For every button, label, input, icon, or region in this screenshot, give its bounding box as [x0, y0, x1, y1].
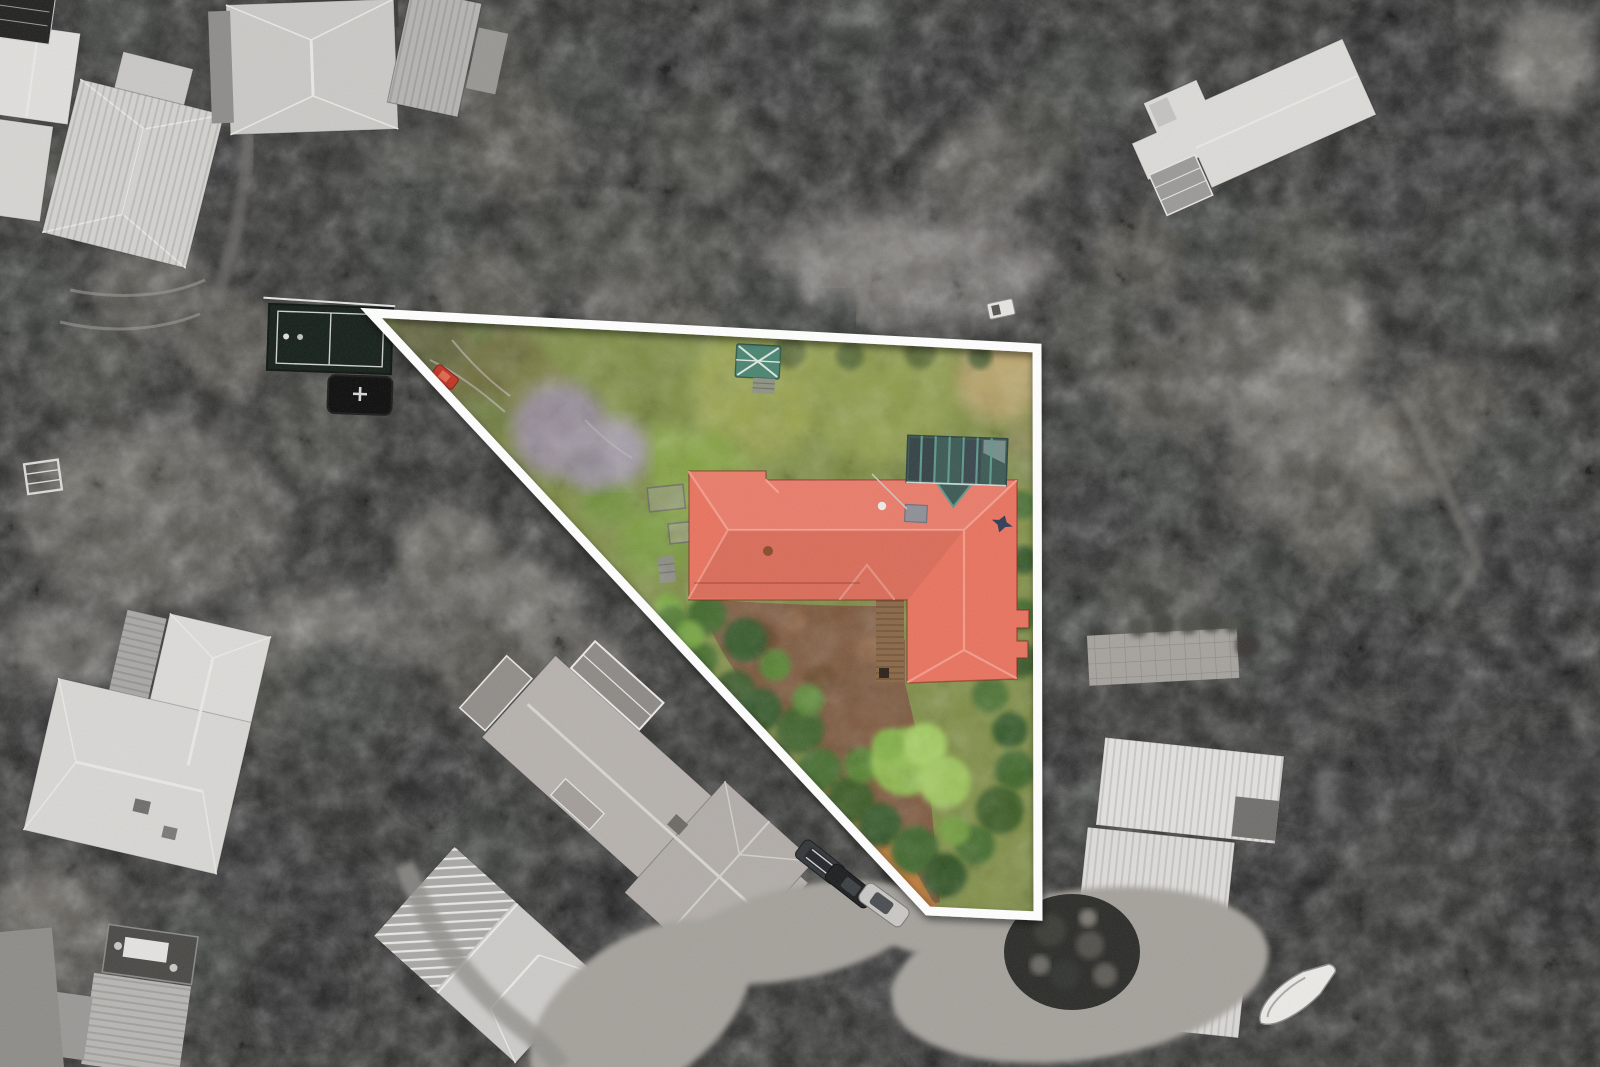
aerial-photo-canvas [0, 0, 1600, 1067]
aerial-photo [0, 0, 1600, 1067]
photo-grain [0, 0, 1600, 1067]
